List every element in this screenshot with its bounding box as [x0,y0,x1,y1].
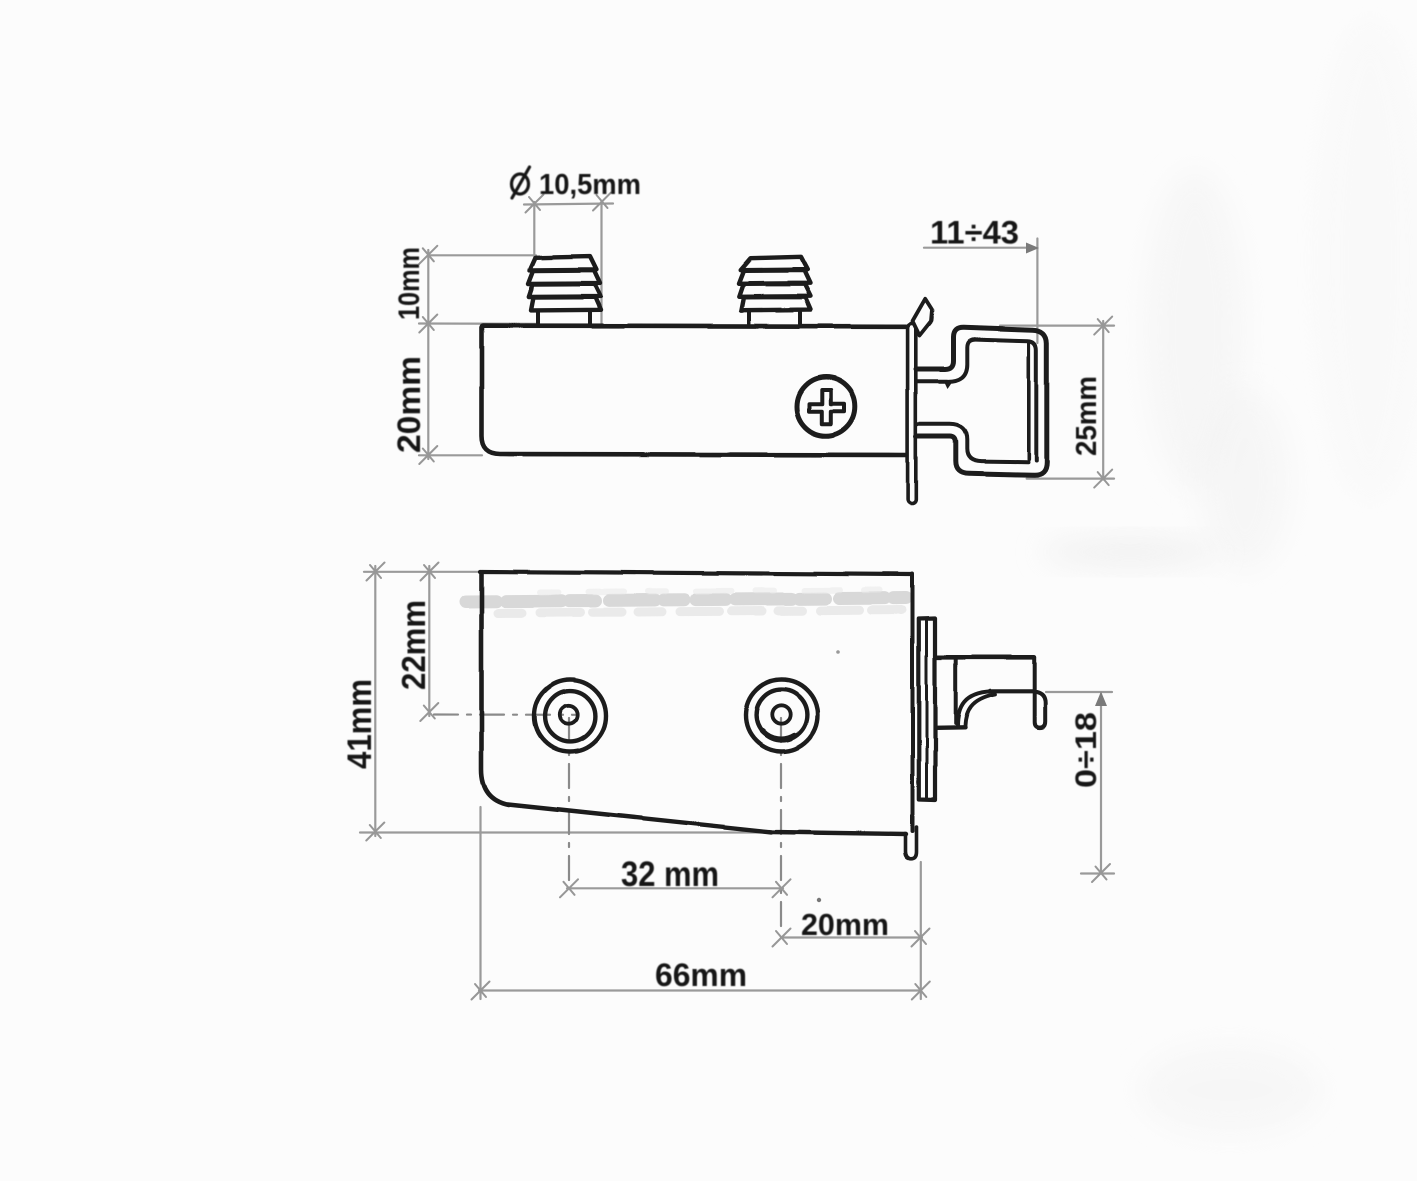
svg-text:32 mm: 32 mm [621,855,719,894]
svg-text:20mm: 20mm [801,907,889,942]
svg-text:10mm: 10mm [393,247,426,320]
svg-text:11÷43: 11÷43 [930,215,1019,251]
svg-text:22mm: 22mm [395,600,432,690]
svg-text:10,5mm: 10,5mm [539,169,641,201]
svg-text:41mm: 41mm [341,679,379,769]
svg-text:66mm: 66mm [655,957,747,993]
svg-text:25mm: 25mm [1071,376,1103,456]
svg-text:20mm: 20mm [391,356,427,453]
svg-text:0÷18: 0÷18 [1070,712,1103,788]
